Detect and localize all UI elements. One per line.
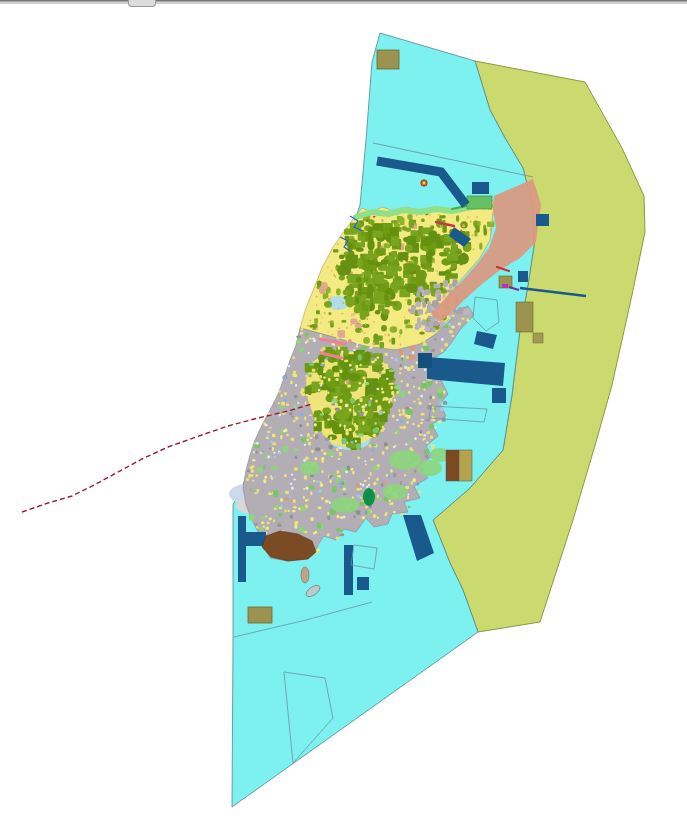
buoy-symbol-inner [423,182,425,184]
port-basin-boundary [536,214,549,226]
park-patch [418,460,442,476]
port-pier-west-vertical [238,516,246,582]
facility-site-north [377,50,399,69]
facility-split-brown [446,450,459,481]
port-basin-south [357,577,369,590]
window-divider-bar [0,0,687,4]
islet-tan [301,567,309,583]
land-use-map[interactable] [0,0,687,821]
park-patch [331,497,359,513]
port-pier-mid-step [418,353,432,368]
screenshot-root [0,0,687,821]
map-viewport [0,0,687,821]
green-facility [467,196,492,209]
park-patch [300,461,320,475]
facility-site-south [248,607,272,623]
divider-grip[interactable] [128,0,156,7]
port-basin-ne [472,182,489,194]
port-pier-south [344,545,353,595]
port-basin-mid [492,388,506,403]
park-patch [389,450,421,470]
harbor-mark-magenta [502,284,508,288]
facility-site-east-large [516,302,533,332]
port-basin-east [518,271,528,282]
dark-green-park [363,488,375,506]
park-patch [383,484,407,500]
port-pier-west-horizontal [238,532,266,546]
facility-split-khaki [459,450,472,481]
facility-site-east-tiny [533,333,543,343]
